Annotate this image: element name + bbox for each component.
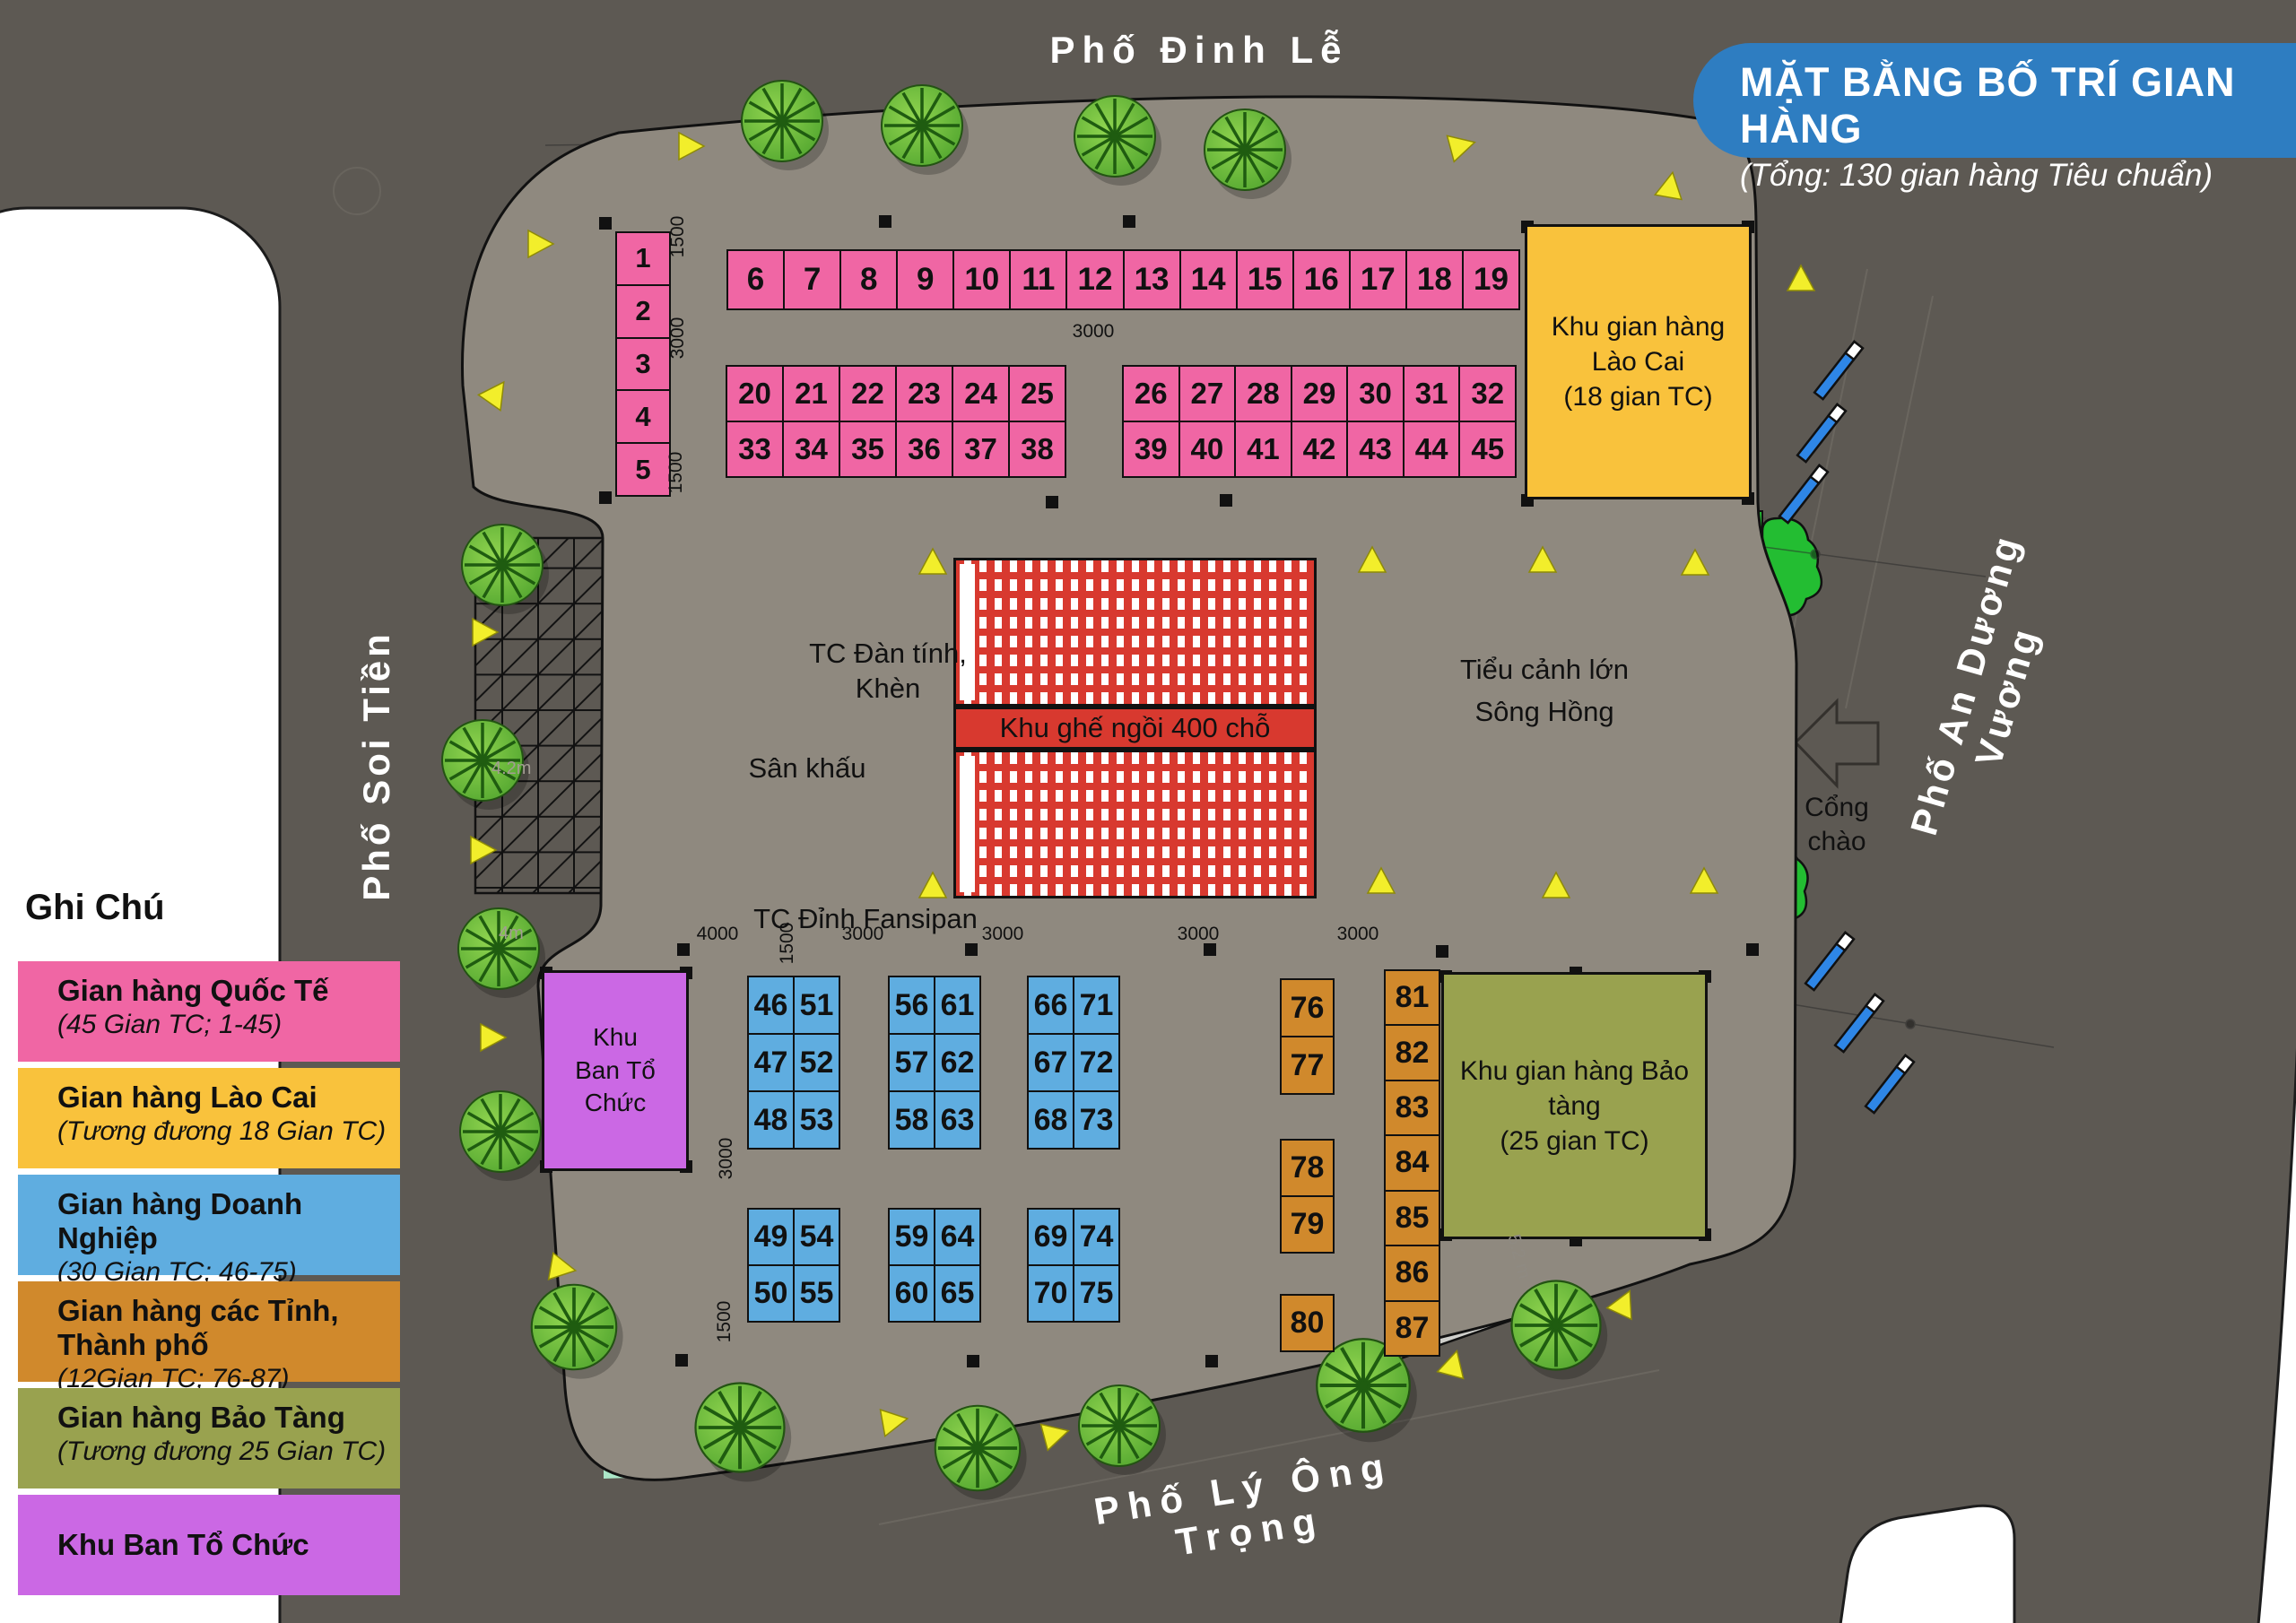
stall-cell: 61 xyxy=(935,977,979,1033)
seating-block-south xyxy=(953,750,1317,898)
legend-label: Gian hàng Lào Cai xyxy=(57,1081,400,1115)
stall-cell: 31 xyxy=(1405,367,1459,421)
stall-cell: 36 xyxy=(897,422,952,476)
legend-sublabel: (Tương đương 18 Gian TC) xyxy=(57,1116,400,1147)
dim-label: 3000 xyxy=(967,924,1039,945)
stall-cell: 6 xyxy=(728,251,783,308)
block-lao-cai: Khu gian hàng Lào Cai (18 gian TC) xyxy=(1525,224,1752,499)
stall-cell: 76 xyxy=(1282,980,1333,1036)
seating-band: Khu ghế ngồi 400 chỗ xyxy=(953,707,1317,750)
legend-sublabel: (45 Gian TC; 1-45) xyxy=(57,1010,400,1040)
site-plan: MẶT BẰNG BỐ TRÍ GIAN HÀNG (Tổng: 130 gia… xyxy=(0,0,2296,1623)
label-san-khau: Sân khấu xyxy=(717,751,897,786)
stall-cell: 71 xyxy=(1074,977,1118,1033)
stall-group-76-77: 7677 xyxy=(1280,978,1335,1095)
dim-label: 3000 xyxy=(1322,924,1394,945)
stall-cell: 72 xyxy=(1074,1035,1118,1090)
stall-cell: 18 xyxy=(1407,251,1462,308)
stall-group-66-73: 667167726873 xyxy=(1027,976,1120,1150)
street-north: Phố Đinh Lễ xyxy=(1020,29,1378,72)
dim-label: 1500 xyxy=(777,907,798,979)
stall-cell: 28 xyxy=(1236,367,1291,421)
stall-group-56-63: 566157625863 xyxy=(888,976,981,1150)
block-sublabel: (18 gian TC) xyxy=(1563,379,1712,414)
stall-cell: 73 xyxy=(1074,1092,1118,1148)
stall-cell: 14 xyxy=(1181,251,1236,308)
stall-cell: 13 xyxy=(1125,251,1179,308)
stall-cell: 85 xyxy=(1386,1192,1439,1245)
seating-block-north xyxy=(953,558,1317,707)
stall-cell: 30 xyxy=(1348,367,1403,421)
stall-cell: 22 xyxy=(840,367,895,421)
stall-group-46-53: 465147524853 xyxy=(747,976,840,1150)
stall-group-49-55: 49545055 xyxy=(747,1208,840,1323)
stall-cell: 59 xyxy=(890,1210,934,1264)
stall-cell: 34 xyxy=(784,422,839,476)
stall-cell: 40 xyxy=(1180,422,1235,476)
stall-group-20-25-33-38: 202122232425333435363738 xyxy=(726,365,1066,478)
block-bao-tang: Khu gian hàng Bảo tàng (25 gian TC) xyxy=(1441,972,1708,1239)
stall-cell: 58 xyxy=(890,1092,934,1148)
legend-label: Gian hàng Bảo Tàng xyxy=(57,1401,400,1435)
stall-cell: 25 xyxy=(1010,367,1065,421)
stall-cell: 7 xyxy=(785,251,839,308)
stall-group-26-32-39-45: 2627282930313239404142434445 xyxy=(1122,365,1517,478)
stall-cell: 4 xyxy=(617,391,669,442)
label-tieu-canh: Tiểu cảnh lớn Sông Hồng xyxy=(1410,653,1679,730)
block-label: Khu xyxy=(593,1021,638,1054)
dim-label: 3000 xyxy=(667,302,689,374)
stall-cell: 84 xyxy=(1386,1136,1439,1189)
block-label: Khu gian hàng Bảo tàng xyxy=(1444,1054,1705,1124)
stall-cell: 70 xyxy=(1029,1266,1073,1321)
stall-group-6-19: 678910111213141516171819 xyxy=(726,249,1520,310)
road-mark: 4m xyxy=(499,924,524,944)
stall-cell: 74 xyxy=(1074,1210,1118,1264)
stall-cell: 43 xyxy=(1348,422,1403,476)
stall-cell: 35 xyxy=(840,422,895,476)
stall-cell: 12 xyxy=(1067,251,1122,308)
legend-label: Gian hàng các Tỉnh, Thành phố xyxy=(57,1294,400,1362)
dim-label: 3000 xyxy=(716,1123,737,1194)
stall-cell: 55 xyxy=(795,1266,839,1321)
stall-cell: 53 xyxy=(795,1092,839,1148)
stall-cell: 17 xyxy=(1351,251,1405,308)
stall-cell: 64 xyxy=(935,1210,979,1264)
page-title: MẶT BẰNG BỐ TRÍ GIAN HÀNG xyxy=(1740,59,2296,152)
stall-cell: 20 xyxy=(727,367,782,421)
stall-group-80: 80 xyxy=(1280,1294,1335,1352)
stall-cell: 78 xyxy=(1282,1141,1333,1195)
stall-cell: 38 xyxy=(1010,422,1065,476)
stall-group-59-65: 59646065 xyxy=(888,1208,981,1323)
stall-cell: 86 xyxy=(1386,1246,1439,1299)
stall-cell: 46 xyxy=(749,977,793,1033)
stall-cell: 81 xyxy=(1386,971,1439,1024)
stall-group-81-87: 81828384858687 xyxy=(1384,969,1440,1357)
dim-label: 1500 xyxy=(714,1286,735,1358)
page-subtitle: (Tổng: 130 gian hàng Tiêu chuẩn) xyxy=(1740,158,2296,194)
block-label2: Ban Tổ Chức xyxy=(544,1055,686,1120)
label-line: TC Đàn tính, xyxy=(776,637,1000,672)
stall-cell: 80 xyxy=(1282,1296,1333,1350)
block-label: Khu gian hàng Lào Cai xyxy=(1527,309,1749,379)
stall-cell: 27 xyxy=(1180,367,1235,421)
stall-cell: 26 xyxy=(1124,367,1178,421)
legend-label: Khu Ban Tổ Chức xyxy=(57,1528,309,1562)
stall-cell: 77 xyxy=(1282,1037,1333,1093)
stall-cell: 49 xyxy=(749,1210,793,1264)
legend-label: Gian hàng Doanh Nghiệp xyxy=(57,1187,400,1255)
label-line: Tiểu cảnh lớn xyxy=(1410,653,1679,688)
road-mark: 4.2m xyxy=(491,759,531,779)
dim-label: 3000 xyxy=(1057,321,1129,343)
stall-cell: 39 xyxy=(1124,422,1178,476)
label-line: Khèn xyxy=(776,672,1000,707)
stall-cell: 75 xyxy=(1074,1266,1118,1321)
stall-cell: 11 xyxy=(1011,251,1065,308)
stall-cell: 41 xyxy=(1236,422,1291,476)
stall-cell: 63 xyxy=(935,1092,979,1148)
stall-cell: 45 xyxy=(1460,422,1515,476)
dim-label: 3000 xyxy=(1162,924,1234,945)
stall-cell: 47 xyxy=(749,1035,793,1090)
stall-cell: 48 xyxy=(749,1092,793,1148)
label-tc-dan-tinh: TC Đàn tính, Khèn xyxy=(776,637,1000,707)
seating-label: Khu ghế ngồi 400 chỗ xyxy=(1000,712,1271,744)
stall-cell: 69 xyxy=(1029,1210,1073,1264)
stall-cell: 19 xyxy=(1464,251,1518,308)
stall-cell: 83 xyxy=(1386,1081,1439,1134)
legend-item-lao-cai: Gian hàng Lào Cai (Tương đương 18 Gian T… xyxy=(18,1068,400,1168)
stall-cell: 23 xyxy=(897,367,952,421)
stall-group-69-75: 69747075 xyxy=(1027,1208,1120,1323)
legend-label: Gian hàng Quốc Tế xyxy=(57,974,400,1008)
dim-label: 3000 xyxy=(827,924,899,945)
stall-cell: 56 xyxy=(890,977,934,1033)
stall-cell: 68 xyxy=(1029,1092,1073,1148)
legend-sublabel: (Tương đương 25 Gian TC) xyxy=(57,1436,400,1467)
stall-cell: 52 xyxy=(795,1035,839,1090)
stall-cell: 1 xyxy=(617,233,669,284)
stall-cell: 66 xyxy=(1029,977,1073,1033)
stall-cell: 8 xyxy=(841,251,896,308)
legend-heading: Ghi Chú xyxy=(25,888,165,928)
stall-cell: 37 xyxy=(953,422,1008,476)
title-box: MẶT BẰNG BỐ TRÍ GIAN HÀNG (Tổng: 130 gia… xyxy=(1693,43,2296,158)
stall-cell: 42 xyxy=(1292,422,1347,476)
legend-item-tinh-thanh-pho: Gian hàng các Tỉnh, Thành phố (12Gian TC… xyxy=(18,1281,400,1382)
stall-cell: 21 xyxy=(784,367,839,421)
stall-group-78-79: 7879 xyxy=(1280,1139,1335,1254)
stall-group-1-5: 12345 xyxy=(615,231,671,497)
stall-cell: 54 xyxy=(795,1210,839,1264)
dim-label: 4000 xyxy=(682,924,753,945)
block-ban-to-chuc: Khu Ban Tổ Chức xyxy=(542,970,689,1171)
legend-item-ban-to-chuc: Khu Ban Tổ Chức xyxy=(18,1495,400,1595)
stall-cell: 32 xyxy=(1460,367,1515,421)
legend-item-quoc-te: Gian hàng Quốc Tế (45 Gian TC; 1-45) xyxy=(18,961,400,1062)
stall-cell: 24 xyxy=(953,367,1008,421)
label-line: chào xyxy=(1783,825,1891,859)
stall-cell: 15 xyxy=(1238,251,1292,308)
stall-cell: 29 xyxy=(1292,367,1347,421)
label-cong-chao: Cổng chào xyxy=(1783,791,1891,858)
stall-cell: 2 xyxy=(617,286,669,337)
stall-cell: 50 xyxy=(749,1266,793,1321)
block-sublabel: (25 gian TC) xyxy=(1500,1124,1648,1159)
stall-cell: 60 xyxy=(890,1266,934,1321)
label-line: Sông Hồng xyxy=(1410,695,1679,730)
street-west: Phố Soi Tiền xyxy=(355,586,398,945)
stall-cell: 51 xyxy=(795,977,839,1033)
stall-cell: 44 xyxy=(1405,422,1459,476)
stall-cell: 33 xyxy=(727,422,782,476)
stall-cell: 57 xyxy=(890,1035,934,1090)
stall-cell: 16 xyxy=(1294,251,1349,308)
stall-cell: 87 xyxy=(1386,1302,1439,1355)
label-line: Cổng xyxy=(1783,791,1891,825)
dim-label: 1500 xyxy=(665,437,687,508)
stall-cell: 65 xyxy=(935,1266,979,1321)
legend-item-bao-tang: Gian hàng Bảo Tàng (Tương đương 25 Gian … xyxy=(18,1388,400,1488)
stall-cell: 10 xyxy=(954,251,1009,308)
stall-cell: 3 xyxy=(617,339,669,390)
stall-cell: 82 xyxy=(1386,1026,1439,1079)
dim-label: 1500 xyxy=(667,201,689,273)
stall-cell: 67 xyxy=(1029,1035,1073,1090)
legend-item-doanh-nghiep: Gian hàng Doanh Nghiệp (30 Gian TC; 46-7… xyxy=(18,1175,400,1275)
stall-cell: 9 xyxy=(898,251,952,308)
stall-cell: 62 xyxy=(935,1035,979,1090)
stall-cell: 79 xyxy=(1282,1197,1333,1252)
stall-cell: 5 xyxy=(617,444,669,495)
